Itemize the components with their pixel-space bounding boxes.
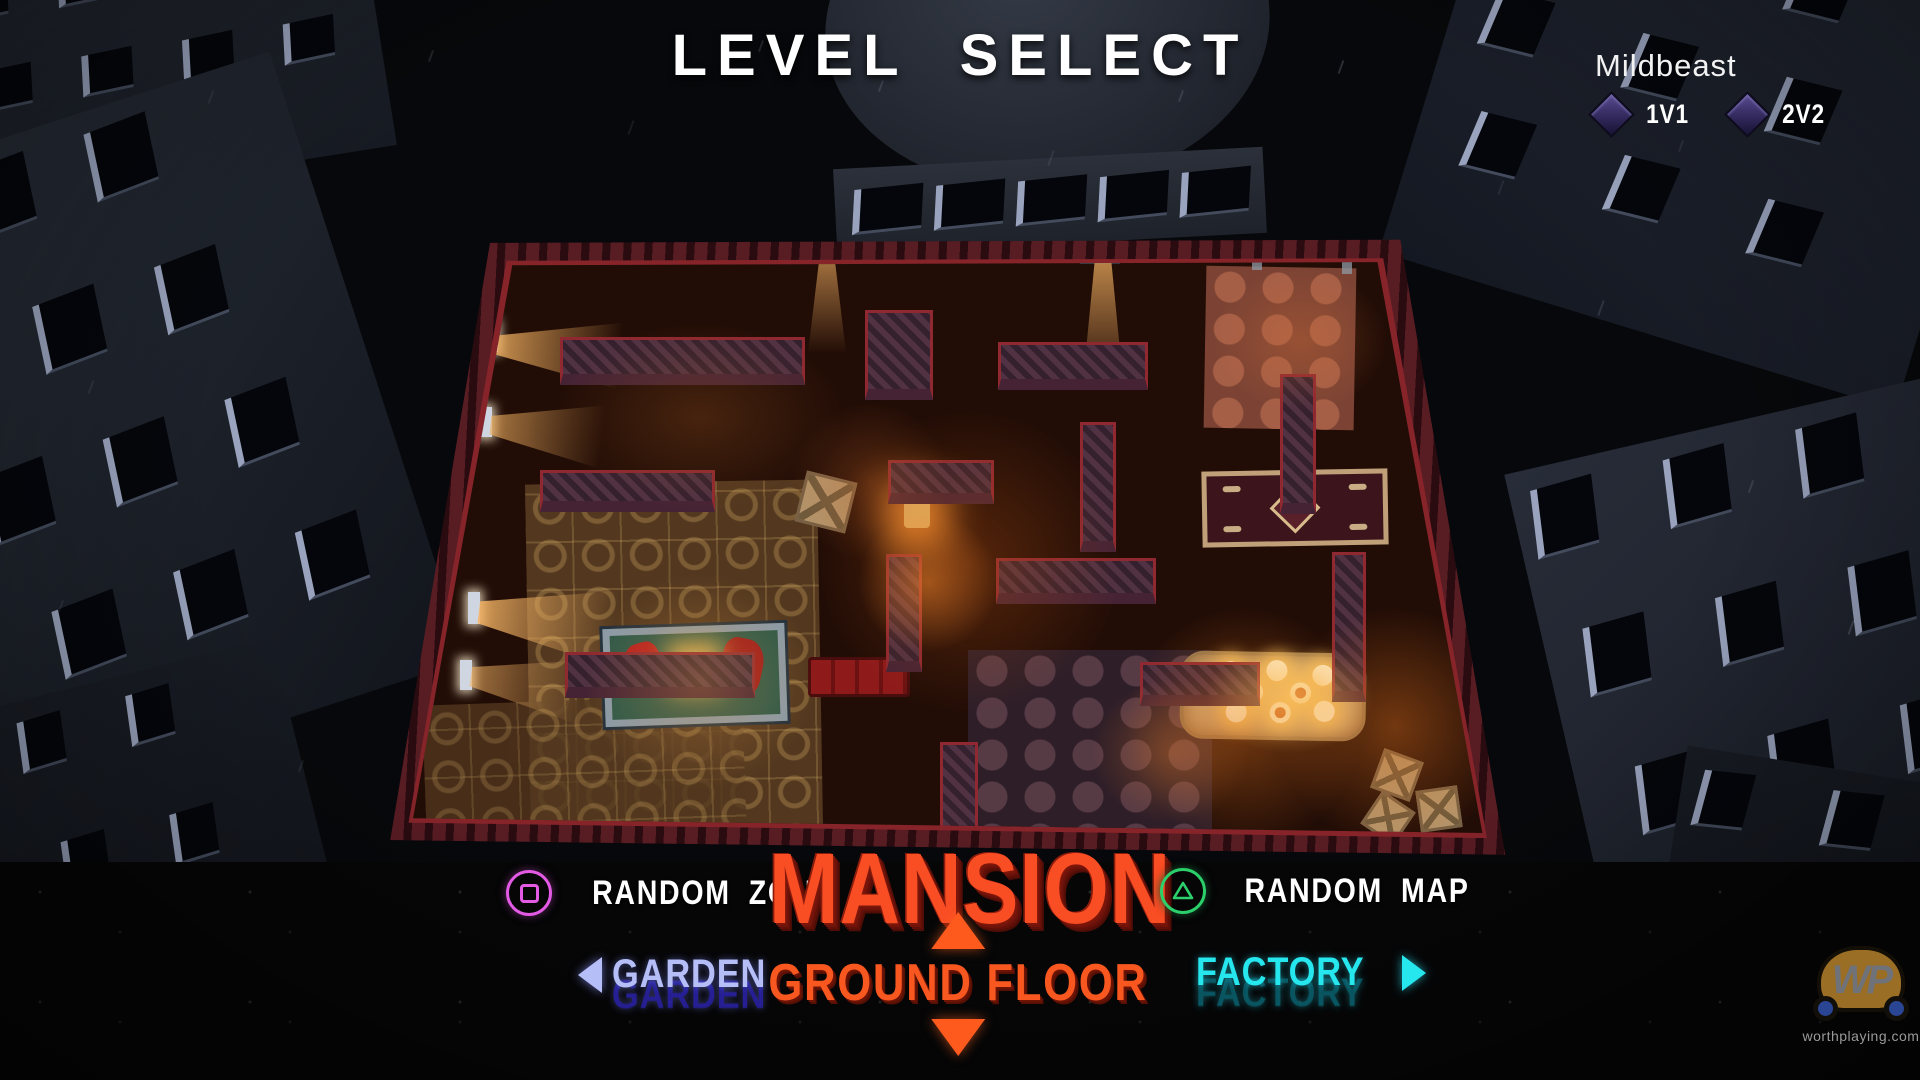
diamond-icon — [1588, 91, 1635, 138]
triangle-glyph — [1171, 879, 1195, 903]
player-panel: Mildbeast 1V1 2V2 — [1595, 48, 1829, 131]
prev-level-button[interactable]: GARDEN GARDEN — [578, 952, 791, 997]
level-select-screen: LEVEL SELECT Mildbeast 1V1 2V2 RANDOM ZO… — [0, 0, 1920, 1080]
floor-label: GROUND FLOOR — [732, 953, 1184, 1013]
mode-2v2-label: 2V2 — [1782, 99, 1825, 130]
floor-up-arrow-icon[interactable] — [931, 912, 985, 949]
worthplaying-url: worthplaying.com — [1796, 1028, 1920, 1044]
floor-selector: GROUND FLOOR — [732, 912, 1184, 1056]
logo-wheel-icon — [1813, 996, 1838, 1021]
mode-1v1-label: 1V1 — [1646, 99, 1689, 130]
random-map-button[interactable]: RANDOM MAP — [1160, 868, 1491, 914]
watermark: WP worthplaying.com — [1796, 946, 1920, 1044]
player-name: Mildbeast — [1595, 48, 1829, 84]
square-button-icon — [506, 870, 552, 916]
next-level-button[interactable]: FACTORY FACTORY — [1196, 950, 1426, 995]
mode-1v1[interactable]: 1V1 — [1595, 98, 1693, 131]
left-arrow-icon — [578, 957, 602, 993]
random-map-label: RANDOM MAP — [1244, 872, 1469, 911]
next-level-label: FACTORY — [1196, 950, 1364, 995]
floor-down-arrow-icon[interactable] — [931, 1019, 985, 1056]
worthplaying-logo-text: WP — [1821, 958, 1901, 1003]
logo-wheel-icon — [1884, 996, 1909, 1021]
right-arrow-icon — [1402, 955, 1426, 991]
triangle-button-icon — [1160, 868, 1206, 914]
mode-selector: 1V1 2V2 — [1595, 98, 1829, 131]
prev-level-label: GARDEN — [612, 952, 766, 997]
worthplaying-logo: WP — [1817, 946, 1905, 1012]
mode-2v2[interactable]: 2V2 — [1731, 98, 1829, 131]
diamond-icon — [1724, 91, 1771, 138]
